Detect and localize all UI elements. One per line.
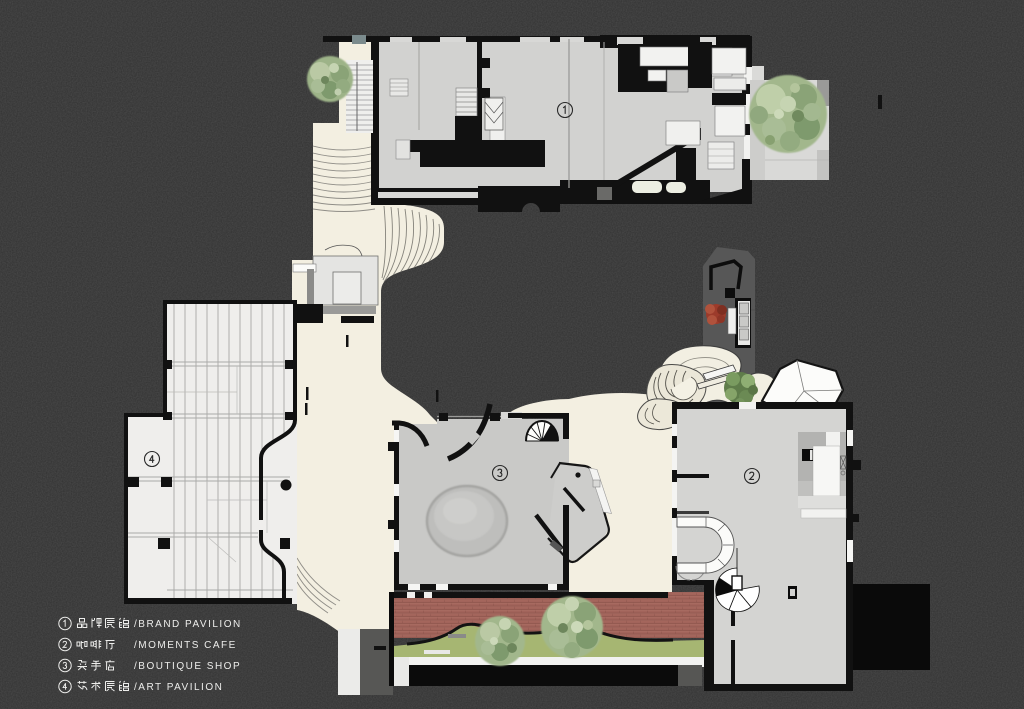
svg-text:/BRAND PAVILION: /BRAND PAVILION xyxy=(134,619,242,630)
svg-text:/BOUTIQUE SHOP: /BOUTIQUE SHOP xyxy=(134,661,241,672)
svg-text:/MOMENTS CAFE: /MOMENTS CAFE xyxy=(134,640,237,651)
svg-text:/ART PAVILION: /ART PAVILION xyxy=(134,682,223,693)
